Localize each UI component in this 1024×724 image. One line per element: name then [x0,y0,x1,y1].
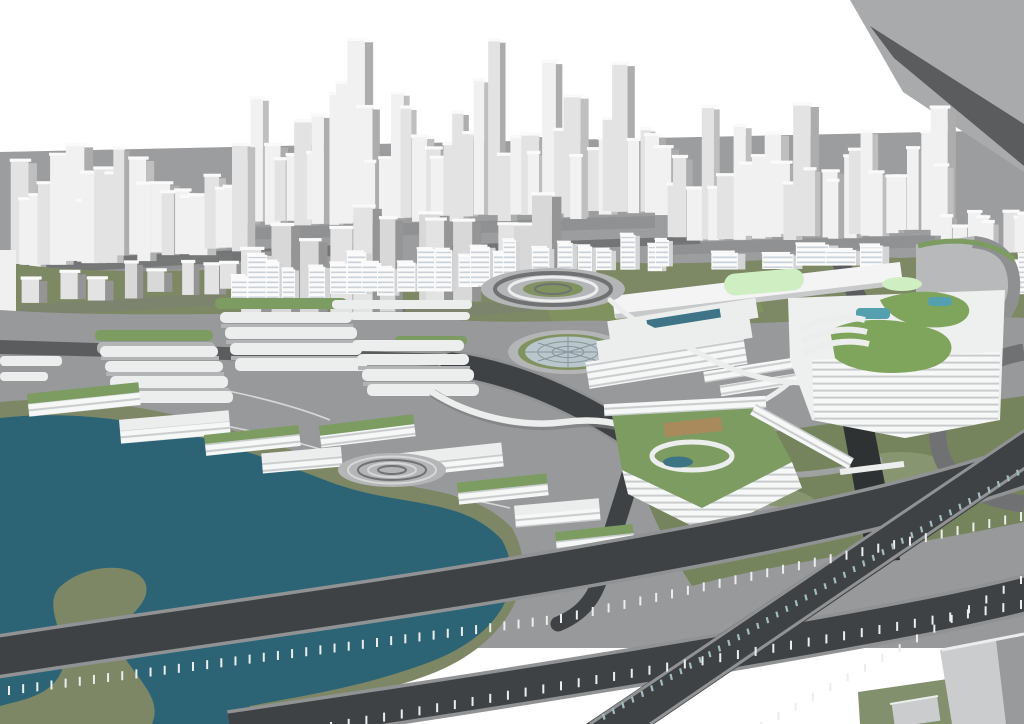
pier [525,688,527,697]
tower-roof [400,105,413,108]
residential-windows [597,252,611,269]
residential-roof [397,260,414,262]
tower-roof [821,169,839,172]
corner-box-large [940,634,1024,724]
edge-slab [0,372,48,381]
tower-roof [1017,211,1024,214]
residential-windows [310,269,325,299]
tower-roof [462,131,474,134]
tower-roof [803,167,816,170]
pier [489,694,491,703]
residential-roof [308,265,323,267]
tower-face [869,173,883,236]
tower-face [401,108,412,217]
low-slab [332,300,472,309]
tower-face [137,184,150,261]
tower-roof [161,190,176,193]
residential-building [620,233,640,270]
pier [365,716,367,724]
tower-face [162,193,174,255]
pier [655,593,657,602]
residential-building [376,266,399,296]
tower-face [612,65,627,212]
pier [941,530,943,539]
pier [830,554,832,563]
tower-roof [701,105,716,108]
pier [50,680,52,689]
pier [825,634,827,643]
tower-face [204,265,219,294]
residential-roof [711,251,735,253]
pier [899,644,901,652]
pier [263,653,265,662]
tower-roof [124,260,139,263]
tower-side [248,147,255,251]
tower-roof [299,238,322,241]
tower-roof [329,226,356,229]
residential-roof [247,253,265,255]
pier [623,600,625,609]
pier [687,586,689,595]
tower-roof [562,94,583,97]
tower-roof [425,146,443,149]
pier [1004,516,1006,525]
tower-roof [430,156,446,159]
pier [798,561,800,570]
pier [608,603,610,612]
tower-roof [930,105,951,108]
pier [766,568,768,577]
tower-face [687,189,703,240]
pier [546,616,548,625]
pier [383,713,385,722]
tower-roof [473,78,486,81]
pier [719,653,721,662]
tower-roof [59,270,80,273]
residential-side [738,254,745,270]
tower-side [164,273,172,292]
residential-roof [577,244,590,246]
pier [107,673,109,682]
pier [334,644,336,653]
tower-face [452,114,463,219]
tower-roof [390,91,405,94]
masterplan-render [0,0,1024,724]
tower-side [78,274,86,299]
pier [22,684,24,693]
tower-roof [654,145,674,148]
tower-side [815,172,820,237]
rooftop-pool [928,297,952,306]
residential-roof [825,248,853,250]
tower-face [232,146,248,252]
pier [988,519,990,528]
pier [932,616,934,625]
pier [595,675,597,684]
pier [864,664,866,672]
tower-roof [425,217,447,220]
residential-windows [861,248,882,266]
residential-windows [283,271,294,298]
tower-face [921,133,932,230]
tower-roof [174,188,191,191]
tower-roof [497,153,513,156]
residential-roof [620,233,634,235]
pier [719,579,721,588]
pier [861,628,863,637]
tower-roof [976,215,990,218]
pier [475,625,477,634]
pier [79,677,81,686]
residential-windows [656,242,668,265]
tower-face [804,170,815,236]
pier [401,709,403,718]
residential-roof [470,245,488,247]
residential-building [281,267,299,300]
tower-face [498,156,511,222]
tower-roof [21,276,42,279]
residential-windows [712,255,737,269]
pier [972,523,974,532]
residential-roof [417,247,433,249]
residential-windows [763,256,792,268]
pier [648,666,650,675]
residential-windows [621,237,634,269]
pier [348,719,350,724]
residential-roof [762,252,790,254]
tower-roof [112,146,125,149]
pier [503,621,505,630]
tower-roof [49,153,68,156]
tower-roof [356,105,375,108]
tower-face [588,150,599,211]
residential-roof [281,267,293,269]
pier [164,666,166,675]
pier [755,647,757,656]
tower-roof [527,151,541,154]
pier [8,686,10,695]
residential-roof [346,250,364,252]
pier [436,703,438,712]
pier [592,607,594,616]
residential-windows [248,257,266,298]
tower-roof [967,210,982,213]
residential-windows [398,265,414,291]
pier [933,625,935,633]
tower-face [463,134,473,216]
tower-face [907,149,919,230]
residential-roof [435,248,450,250]
pier [795,703,797,711]
pier [234,656,236,665]
office-stack-c [352,336,479,396]
residential-roof [361,261,379,263]
pier [206,660,208,669]
pier [878,625,880,634]
residential-roof [1018,252,1024,254]
tower-face [474,81,485,215]
pier [925,533,927,542]
tower-face [1018,214,1024,250]
residential-roof [531,246,547,248]
pier [560,681,562,690]
pier [507,691,509,700]
tower-side [137,265,143,299]
residential-windows [579,248,592,272]
tower-roof [240,247,264,250]
tower-face [182,263,194,295]
pier [362,640,364,649]
edge-slab [0,356,62,366]
pier [734,575,736,584]
pier [36,682,38,691]
terraced-complex [788,277,1005,438]
pier [702,656,704,665]
tower [473,78,489,215]
tower-face [147,271,164,292]
pier [178,664,180,673]
pier [829,683,831,691]
pier [532,618,534,627]
tower-roof [640,127,652,130]
tower-roof [264,143,283,146]
pier [433,631,435,640]
tower [569,154,587,219]
tower-roof [451,111,465,114]
pier [1020,576,1022,584]
pier [1020,600,1022,609]
pier [968,605,970,613]
tower-roof [364,160,376,163]
tower-roof [627,138,641,141]
tower-face [22,279,39,302]
pier [560,614,562,623]
pier [877,544,879,553]
tower-face [628,141,640,213]
tower-roof [346,38,367,41]
tower-side [324,118,330,224]
tower-roof [128,156,148,159]
tower-face [113,149,124,255]
residential-windows [826,252,855,264]
tower-roof [952,224,970,227]
residential-side [636,236,640,270]
pier [192,662,194,671]
tower-roof [87,276,108,279]
residential-roof [655,238,668,240]
tower-face [752,157,766,239]
pier [93,675,95,684]
low-slab [350,312,470,320]
tower-face [125,263,137,298]
pier [896,622,898,631]
tower-side [582,158,587,219]
pier [461,627,463,636]
pier [542,684,544,693]
pier [808,638,810,647]
pier [1002,603,1004,612]
residential-side [295,270,299,299]
tower-roof [352,204,375,207]
residential-building [435,248,457,292]
tower [181,260,199,295]
residential-building [655,238,673,267]
tower-roof [411,134,429,137]
residential-side [325,268,330,300]
tower-roof [520,132,542,135]
residential-building [595,248,616,271]
pier [121,671,123,680]
residential-roof [502,238,514,240]
pier [65,679,67,688]
tower-roof [764,132,784,135]
tower-roof [940,214,953,217]
tower-roof [310,113,325,116]
pier [985,606,987,615]
pier [909,537,911,546]
tower-side [105,281,113,301]
tower-side [194,264,200,295]
tower-roof [587,147,601,150]
courtyard-pond [663,457,693,468]
residential-windows [378,270,394,295]
residential-building [860,243,890,267]
pier [846,551,848,560]
pier [220,658,222,667]
pier [319,645,321,654]
residential-roof [330,261,345,263]
pier [985,595,987,603]
pier [1003,586,1005,594]
pier [750,572,752,581]
pier [703,582,705,591]
residential-windows [797,246,828,264]
pier [814,558,816,567]
pier [666,663,668,672]
pier [847,673,849,681]
spiral-roundabout [481,268,625,310]
pier [957,526,959,535]
tower-roof [149,181,173,184]
tower-roof [569,154,583,157]
tower-roof [146,268,167,271]
pier [390,636,392,645]
tower [310,113,329,224]
tower-roof [541,60,558,63]
pier [914,619,916,628]
pier [777,712,779,720]
tower [124,260,143,298]
residential-windows [267,264,279,299]
tower-face [717,176,734,239]
residential-windows [471,249,489,285]
tower-roof [203,174,221,177]
tower-face [431,159,444,219]
tower-roof [934,163,949,166]
tower-roof [65,143,87,146]
tower-face [275,160,286,221]
tower-roof [531,192,555,195]
tower-side [39,281,47,303]
pier [348,642,350,651]
tower-roof [672,155,688,158]
tower-roof [868,170,885,173]
residential-windows [436,252,451,291]
tower-roof [644,133,661,136]
tower-roof [203,262,221,265]
pier [576,610,578,619]
tower-face [60,273,77,299]
pier [843,631,845,640]
render-viewport [0,0,1024,724]
pier [376,638,378,647]
tower-roof [379,216,398,219]
residential-side [612,251,616,270]
tower [803,167,820,236]
tower-roof [10,159,31,162]
tower-face [570,157,581,219]
pier [305,647,307,656]
pier [861,547,863,556]
pier [518,620,520,629]
residential-roof [376,266,392,268]
tower-roof [219,261,239,264]
residential-building [577,244,596,273]
residential-roof [557,241,571,243]
residential-roof [860,243,881,245]
tower-roof [274,157,287,160]
tower-roof [452,219,475,222]
tower [1017,211,1024,250]
residential-side [452,251,457,292]
tower-face [50,156,66,265]
tower [112,146,129,255]
tower-face [88,279,106,300]
tower-face [412,137,427,221]
pier [472,697,474,706]
residential-roof [795,242,825,244]
tower-roof [293,119,314,122]
terrace-mint-canopy [882,277,922,291]
pier [613,672,615,681]
tower-face [673,158,686,237]
tower-roof [982,220,995,223]
tower-side [838,183,843,239]
tower-roof [418,211,443,214]
tower-roof [792,102,813,105]
tower-roof [270,223,294,226]
pier [951,615,953,623]
pier [812,693,814,701]
pier [772,644,774,653]
tower-roof [250,96,265,99]
tower-roof [906,146,920,149]
residential-roof [265,260,277,262]
residential-building [308,265,330,300]
amphitheater-oval [338,453,446,487]
tower-roof [733,124,748,127]
pier [291,649,293,658]
pier [454,700,456,709]
pier [881,654,883,662]
pier [418,706,420,715]
pier [782,565,784,574]
residential-side [592,247,596,273]
pier [737,650,739,659]
pier [684,659,686,668]
residential-windows [331,266,346,293]
residential-roof [595,248,609,250]
